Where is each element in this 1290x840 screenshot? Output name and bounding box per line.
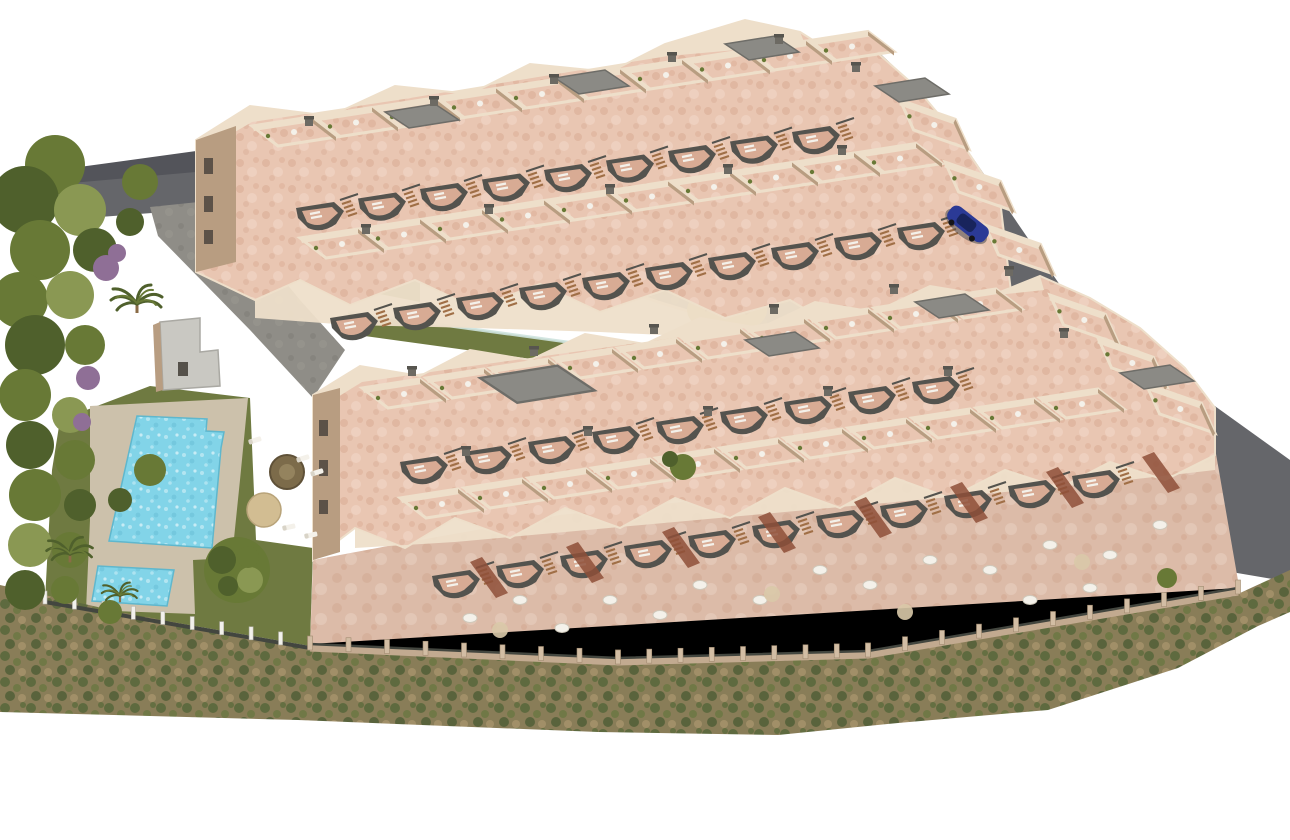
tree-blob [55, 440, 95, 480]
terrace-furniture-item [653, 611, 667, 620]
masonry-post [903, 637, 908, 651]
tree-blob [65, 325, 105, 365]
tree-blob [76, 366, 100, 390]
chimney [549, 74, 559, 84]
tree-blob [108, 488, 132, 512]
terrace-furniture-item [555, 624, 569, 633]
chimney [837, 145, 847, 155]
fence-post [279, 632, 283, 645]
terrace-furniture-item [1023, 596, 1037, 605]
chimney [407, 366, 417, 376]
chimney [851, 62, 861, 72]
tree-blob [9, 469, 61, 521]
masonry-post [308, 636, 313, 650]
masonry-post [940, 630, 945, 644]
chimney [723, 164, 733, 174]
chimney [667, 52, 677, 62]
tree-blob [122, 164, 158, 200]
chimney [361, 224, 371, 234]
tree-blob [237, 567, 263, 593]
tree-blob [116, 208, 144, 236]
chimney [649, 324, 659, 334]
chimney [529, 346, 539, 356]
masonry-post [1051, 612, 1056, 626]
masonry-post [577, 648, 582, 662]
tree-blob [1157, 568, 1177, 588]
chimney [461, 446, 471, 456]
masonry-post [647, 649, 652, 663]
tree-blob [6, 421, 54, 469]
fence-post [131, 606, 135, 619]
chimney [889, 284, 899, 294]
masonry-post [1162, 593, 1167, 607]
masonry-post [741, 647, 746, 661]
tree-blob [10, 220, 70, 280]
chimney [583, 426, 593, 436]
terrace-furniture-item [863, 581, 877, 590]
terrace-furniture-item [1153, 521, 1167, 530]
tree-blob [73, 413, 91, 431]
masonry-post [462, 643, 467, 657]
masonry-post [709, 647, 714, 661]
masonry-post [423, 641, 428, 655]
round-rug [492, 622, 508, 638]
tree-blob [98, 600, 122, 624]
round-rug [764, 586, 780, 602]
fence-post [161, 611, 165, 624]
terrace-furniture-item [813, 566, 827, 575]
chimney [429, 96, 439, 106]
round-rug [897, 604, 913, 620]
masonry-post [539, 647, 544, 661]
chimney [304, 116, 314, 126]
masonry-post [866, 643, 871, 657]
masonry-post [834, 644, 839, 658]
tree-blob [218, 576, 238, 596]
chimney [823, 386, 833, 396]
masonry-post [1199, 586, 1204, 600]
chimney [1059, 328, 1069, 338]
masonry-post [977, 624, 982, 638]
terrace-furniture-item [1103, 551, 1117, 560]
masonry-post [772, 646, 777, 660]
chimney [605, 184, 615, 194]
upper-block-west-facade [196, 126, 236, 272]
chimney [1004, 266, 1014, 276]
tree-blob [134, 454, 166, 486]
tree-blob [54, 184, 106, 236]
masonry-post [1014, 618, 1019, 632]
tree-blob [46, 271, 94, 319]
chimney [703, 406, 713, 416]
chimney [769, 304, 779, 314]
tree-blob [5, 570, 45, 610]
fence-post [249, 627, 253, 640]
masonry-post [385, 640, 390, 654]
render-canvas [0, 0, 1290, 840]
terrace-furniture-item [603, 596, 617, 605]
masonry-post [346, 638, 351, 652]
terrace-furniture-item [463, 614, 477, 623]
chimney [774, 34, 784, 44]
tree-blob [64, 489, 96, 521]
round-garden-tree [204, 537, 270, 603]
masonry-post [803, 645, 808, 659]
tree-blob [108, 244, 126, 262]
masonry-post [1125, 599, 1130, 613]
tree-blob [51, 576, 79, 604]
masonry-post [616, 650, 621, 664]
masonry-post [1236, 580, 1241, 594]
tree-blob [208, 546, 236, 574]
terrace-furniture-item [1083, 584, 1097, 593]
chimney [484, 204, 494, 214]
masonry-post [1088, 605, 1093, 619]
fence-post [190, 617, 194, 630]
masonry-post [678, 648, 683, 662]
terrace-furniture-item [1043, 541, 1057, 550]
tree-blob [5, 315, 65, 375]
tree-blob [237, 546, 259, 568]
terrace-furniture-item [983, 566, 997, 575]
tree-blob [662, 451, 678, 467]
terrace-furniture-item [693, 581, 707, 590]
tree-blob [8, 523, 52, 567]
terrace-furniture-item [923, 556, 937, 565]
sun-umbrella [247, 493, 281, 527]
terrace-furniture-item [513, 596, 527, 605]
round-rug [1074, 554, 1090, 570]
tree-blob [0, 369, 51, 421]
aerial-render-svg [0, 0, 1290, 840]
chimney [943, 366, 953, 376]
masonry-post [500, 645, 505, 659]
fence-post [220, 622, 224, 635]
